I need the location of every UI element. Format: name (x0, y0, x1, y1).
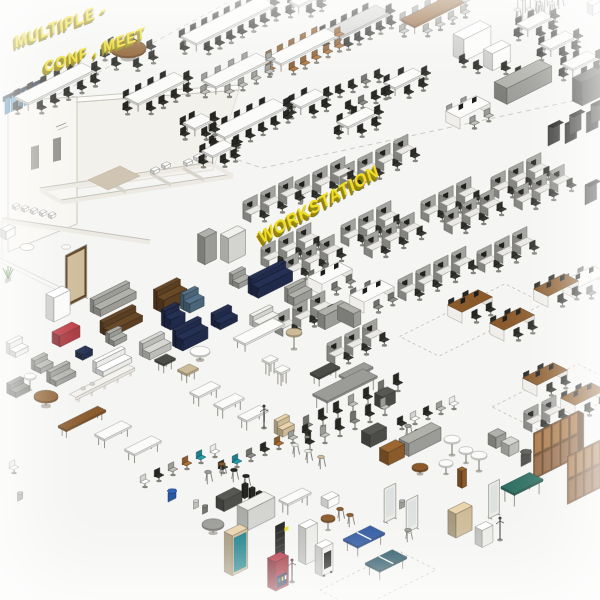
round-table (412, 463, 428, 475)
furniture-collection-render: MULTIPLE - CONF , MEET WORKSTATION (0, 0, 600, 600)
table (125, 436, 162, 463)
cubicle-workstations (341, 201, 427, 259)
dark-cubicle-partitions (585, 166, 600, 205)
storage-box (321, 492, 339, 509)
conference-table-set (266, 26, 345, 75)
table (274, 365, 290, 386)
chair-row (140, 444, 220, 489)
conference-table-set (320, 3, 397, 51)
table (279, 488, 311, 515)
stool (231, 468, 239, 482)
chair (501, 61, 511, 76)
storage-box (52, 322, 80, 347)
storage-box (46, 286, 70, 322)
coat-rack (288, 558, 296, 583)
round-table (34, 390, 58, 408)
round-table (202, 519, 224, 535)
stool (337, 507, 345, 521)
plant (3, 266, 13, 283)
sofa (211, 305, 237, 330)
storage-box (448, 502, 472, 538)
bin (17, 492, 23, 502)
vending-machine (268, 552, 289, 591)
storage-box (572, 67, 600, 106)
storage-box (242, 482, 248, 498)
coat-rack (496, 516, 504, 541)
round-table (471, 451, 487, 472)
table (262, 355, 278, 376)
round-table (321, 515, 335, 532)
display-kiosk (315, 540, 333, 577)
stool (305, 449, 313, 463)
chair (473, 60, 483, 75)
conference-table-set (286, 0, 329, 19)
bin (399, 500, 405, 510)
bin (202, 505, 208, 515)
round-table (444, 435, 460, 456)
storage-box (362, 423, 387, 448)
cubicle-workstations (491, 153, 577, 211)
conference-table-set (381, 66, 431, 101)
chair-row (218, 424, 312, 475)
desk-cluster (523, 363, 571, 397)
storage-box (76, 346, 93, 360)
stool (318, 455, 326, 469)
stool (205, 470, 213, 484)
table (155, 354, 176, 373)
sofa (6, 336, 28, 358)
ping-pong-table (365, 550, 406, 581)
round-table (286, 328, 302, 350)
stool (347, 513, 355, 527)
desk-cluster (446, 96, 494, 130)
table (95, 421, 132, 448)
panel (405, 495, 418, 533)
storage-box (299, 519, 318, 564)
table (214, 393, 244, 418)
storage-box (458, 467, 467, 488)
bin (193, 500, 199, 510)
desk-cluster (534, 274, 582, 308)
panel (383, 483, 396, 523)
table (178, 364, 199, 383)
conference-table-set (334, 105, 384, 140)
conference-table-set (287, 87, 333, 120)
stool (292, 443, 300, 457)
scene-canvas (0, 0, 600, 600)
dark-cubicle-partitions (548, 99, 600, 146)
cubicle-workstations (477, 227, 539, 273)
storage-box (399, 423, 441, 457)
stool (405, 528, 413, 542)
storage-box (380, 440, 405, 466)
desk-cluster (448, 290, 496, 324)
storage-box (221, 226, 246, 264)
chair (9, 460, 19, 475)
ping-pong-table (343, 526, 384, 557)
desk-cluster (490, 308, 538, 342)
storage-box (475, 522, 493, 548)
storage-box (224, 524, 247, 576)
furniture-layer (3, 0, 600, 591)
round-table (439, 460, 453, 476)
drum-stool (168, 489, 177, 502)
table (190, 381, 220, 406)
round-table (190, 346, 210, 362)
desk-cluster (308, 262, 356, 296)
storage-box (198, 228, 217, 264)
drum-stool (521, 449, 532, 466)
conference-table-set (179, 0, 281, 55)
panel (488, 479, 501, 519)
table (501, 473, 543, 507)
storage-box (587, 0, 600, 15)
